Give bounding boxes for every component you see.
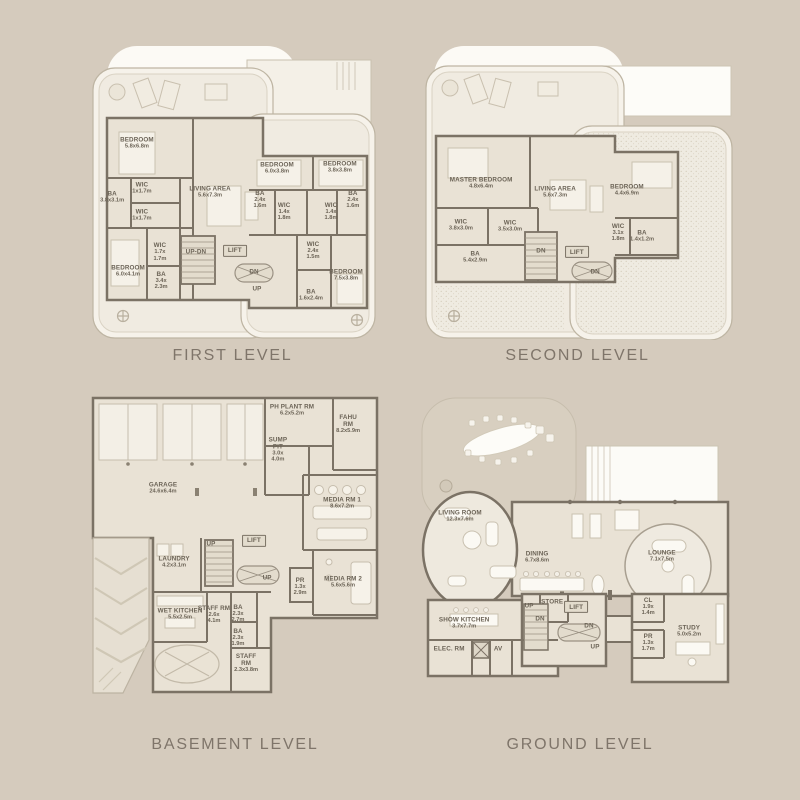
room-label: STUDY5.0x5.2m xyxy=(677,624,701,637)
first-level-caption: FIRST LEVEL xyxy=(85,347,380,365)
room-label: PH PLANT RM6.2x5.2m xyxy=(270,403,314,416)
basement-level-labels: PH PLANT RM6.2x5.2mFAHURM8.2x5.9mSUMPPIT… xyxy=(85,390,385,705)
room-label: LIFT xyxy=(564,601,588,613)
room-label: DN xyxy=(249,268,258,275)
room-label: BA1.6x2.4m xyxy=(299,288,323,301)
room-label: BEDROOM5.8x6.8m xyxy=(120,136,154,149)
room-label: SHOW KITCHEN3.7x7.7m xyxy=(439,616,490,629)
room-label: STAFFRM2.3x3.8m xyxy=(234,653,258,673)
room-label: STORE xyxy=(541,598,563,605)
room-label: BEDROOM6.0x3.8m xyxy=(260,161,294,174)
ground-level-labels: LIVING ROOM12.3x7.6mDINING6.7x8.6mLOUNGE… xyxy=(420,390,740,705)
room-label: LIFT xyxy=(223,245,247,257)
second-level-caption: SECOND LEVEL xyxy=(420,347,735,365)
room-label: UP xyxy=(263,575,272,582)
room-label: DN xyxy=(536,247,545,254)
room-label: ELEC. RM xyxy=(434,645,465,652)
room-label: BA2.4x1.6m xyxy=(253,190,266,210)
room-label: BA1.4x1.2m xyxy=(630,229,654,242)
basement-level-caption: BASEMENT LEVEL xyxy=(85,736,385,754)
room-label: PR1.3x2.9m xyxy=(294,577,307,597)
first-level-panel: BEDROOM5.8x6.8mWIC1x1.7mBA3.8x3.1mWIC1x1… xyxy=(85,40,380,340)
room-label: WIC3.5x3.0m xyxy=(498,219,522,232)
room-label: AV xyxy=(494,645,502,652)
room-label: BA5.4x2.9m xyxy=(463,250,487,263)
first-level-labels: BEDROOM5.8x6.8mWIC1x1.7mBA3.8x3.1mWIC1x1… xyxy=(85,40,380,340)
second-level-panel: MASTER BEDROOM4.8x6.4mLIVING AREA5.6x7.3… xyxy=(420,40,735,340)
room-label: LIFT xyxy=(242,535,266,547)
second-level-labels: MASTER BEDROOM4.8x6.4mLIVING AREA5.6x7.3… xyxy=(420,40,735,340)
room-label: WIC2.4x1.5m xyxy=(307,241,320,261)
room-label: GARAGE24.6x6.4m xyxy=(149,481,177,494)
floor-plans-sheet: BEDROOM5.8x6.8mWIC1x1.7mBA3.8x3.1mWIC1x1… xyxy=(0,0,800,800)
room-label: LAUNDRY4.2x3.1m xyxy=(158,555,189,568)
room-label: DINING6.7x8.6m xyxy=(525,550,549,563)
room-label: WIC1x1.7m xyxy=(132,181,151,194)
room-label: CL1.9x1.4m xyxy=(642,597,655,617)
room-label: LIVING AREA5.6x7.3m xyxy=(534,185,575,198)
room-label: UP xyxy=(525,603,534,610)
room-label: SUMPPIT3.0x4.0m xyxy=(269,436,288,463)
room-label: BEDROOM4.4x6.9m xyxy=(610,183,644,196)
room-label: BA2.3x1.9m xyxy=(232,628,245,648)
ground-level-caption: GROUND LEVEL xyxy=(420,736,740,754)
room-label: MEDIA RM 25.6x5.6m xyxy=(324,575,362,588)
room-label: PR1.3x1.7m xyxy=(642,633,655,653)
ground-level-panel: LIVING ROOM12.3x7.6mDINING6.7x8.6mLOUNGE… xyxy=(420,390,740,705)
room-label: DN xyxy=(535,615,544,622)
room-label: BEDROOM7.5x3.8m xyxy=(329,268,363,281)
room-label: UP xyxy=(253,285,262,292)
room-label: BA3.8x3.1m xyxy=(100,190,124,203)
room-label: UP-DN xyxy=(186,249,206,256)
room-label: WIC1x1.7m xyxy=(132,208,151,221)
room-label: LIVING ROOM12.3x7.6m xyxy=(438,509,481,522)
room-label: BEDROOM3.8x3.8m xyxy=(323,160,357,173)
room-label: BA2.3x2.7m xyxy=(232,604,245,624)
room-label: MEDIA RM 18.6x7.2m xyxy=(323,496,361,509)
room-label: UP xyxy=(591,644,600,651)
room-label: WIC1.4x1.8m xyxy=(278,202,291,222)
room-label: LOUNGE7.1x7.5m xyxy=(648,549,676,562)
room-label: LIVING AREA5.6x7.3m xyxy=(189,185,230,198)
room-label: BEDROOM6.0x4.1m xyxy=(111,264,145,277)
room-label: BA3.4x2.3m xyxy=(155,271,168,291)
room-label: WIC1.7x1.7m xyxy=(153,242,166,262)
room-label: STAFF RM2.6x4.1m xyxy=(198,605,230,625)
room-label: BA2.4x1.6m xyxy=(346,190,359,210)
basement-level-panel: PH PLANT RM6.2x5.2mFAHURM8.2x5.9mSUMPPIT… xyxy=(85,390,385,705)
room-label: WIC3.8x3.0m xyxy=(449,218,473,231)
room-label: DN xyxy=(590,268,599,275)
room-label: FAHURM8.2x5.9m xyxy=(336,414,360,434)
room-label: WIC3.1x1.8m xyxy=(612,223,625,243)
room-label: UP xyxy=(207,541,216,548)
room-label: MASTER BEDROOM4.8x6.4m xyxy=(450,176,513,189)
room-label: LIFT xyxy=(565,246,589,258)
room-label: DN xyxy=(584,622,593,629)
room-label: WIC1.4x1.8m xyxy=(325,202,338,222)
room-label: WET KITCHEN5.5x2.5m xyxy=(158,607,203,620)
